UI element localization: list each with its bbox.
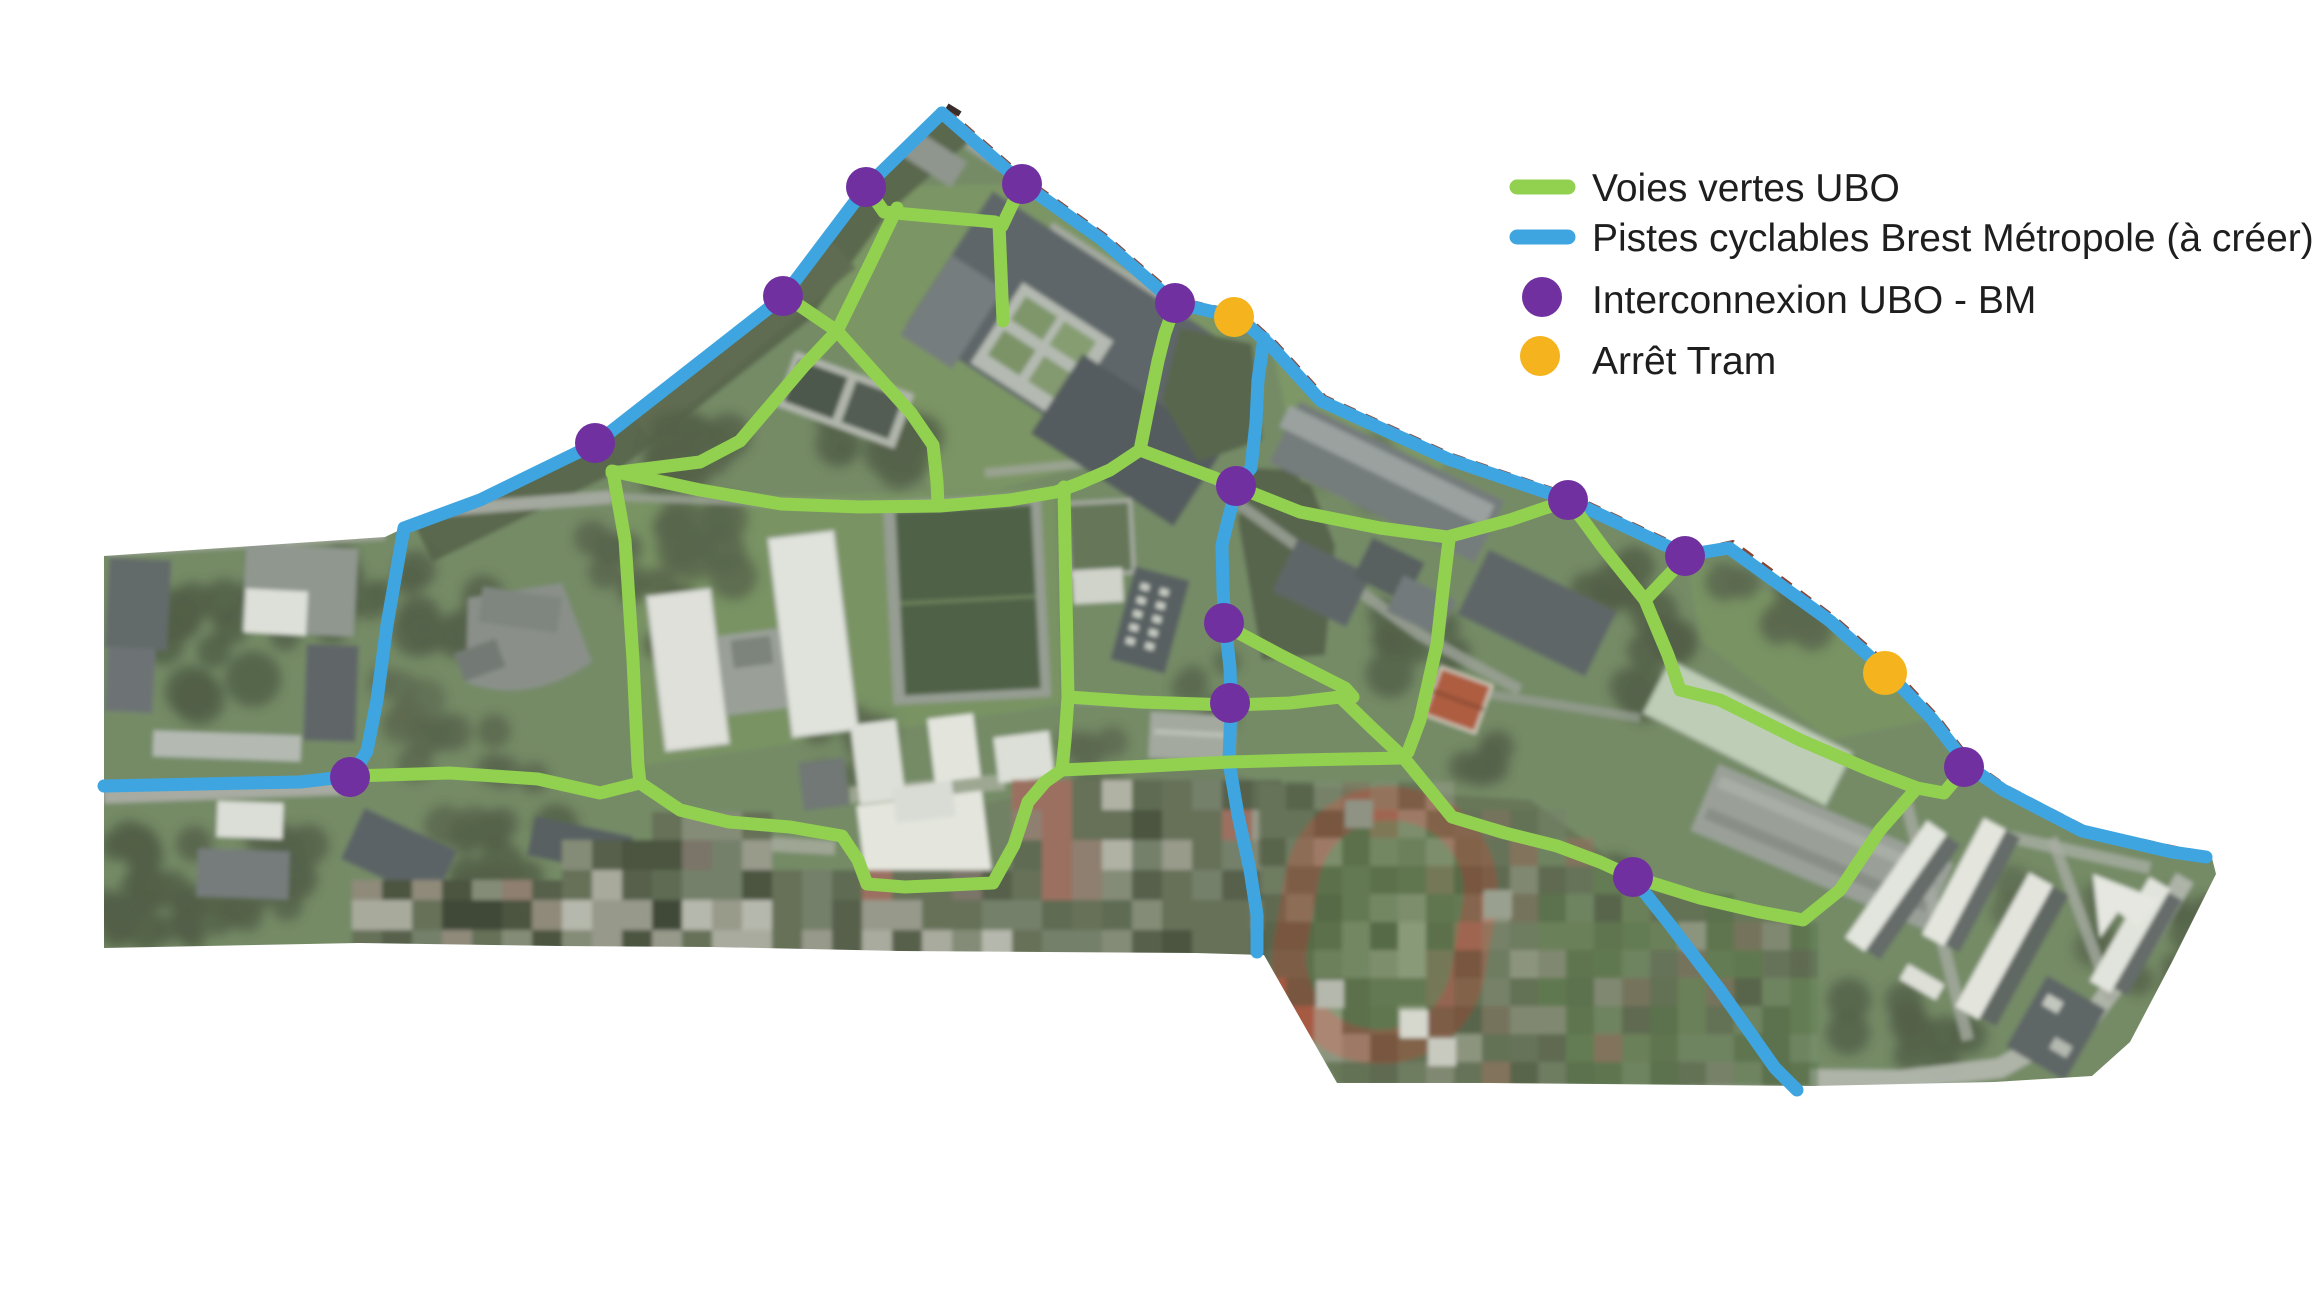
svg-text:Voies vertes UBO: Voies vertes UBO [1592,167,1900,210]
svg-text:Pistes cyclables Brest Métropo: Pistes cyclables Brest Métropole (à crée… [1592,217,2314,260]
svg-text:Interconnexion UBO - BM: Interconnexion UBO - BM [1592,279,2036,322]
svg-text:Arrêt Tram: Arrêt Tram [1592,340,1776,383]
